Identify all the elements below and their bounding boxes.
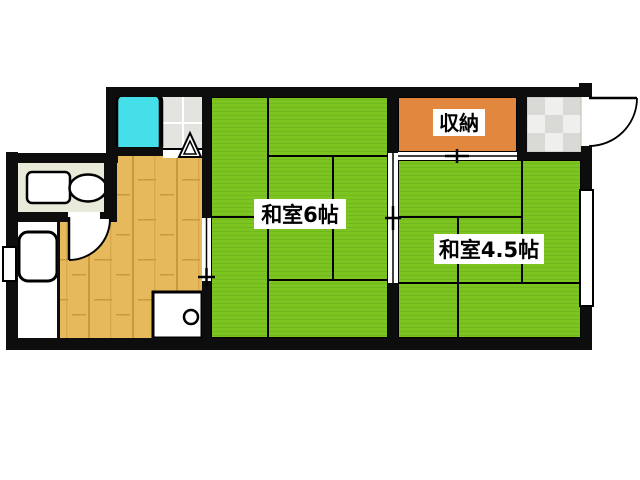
genkan-tile [563,133,581,152]
genkan-tile [563,97,581,115]
bathtub-icon [19,232,57,281]
genkan-tile [527,115,545,133]
window-right-icon [580,190,593,306]
wall-bottom [6,338,592,350]
genkan-tile [545,133,563,152]
genkan-tile [563,115,581,133]
window-left-icon [3,247,16,281]
wall-toilet-bottom-left [6,212,68,222]
wall-washroom-right [57,222,60,338]
tatami6-label: 和室6帖 [261,203,339,227]
wall-hall-tatami6-upper [202,87,211,218]
wall-door-post [579,83,592,97]
toilet-tank-icon [27,172,70,203]
wall-hall-tatami6-lower [202,281,211,338]
genkan-tile [545,97,563,115]
wall-between-rooms-lower [388,283,398,338]
genkan-tile [527,97,545,115]
genkan-entrance [527,97,581,152]
toilet-room [18,163,107,212]
toilet-bowl-icon [70,175,107,202]
floor-plan-page: 収納 和室6帖 和室4.5帖 [0,0,640,480]
floor-plan-drawing: 収納 和室6帖 和室4.5帖 [0,0,640,480]
wall-kitchen-left [106,87,116,163]
wall-between-rooms-upper [388,87,398,153]
genkan-tile [545,115,563,133]
wall-genkan-bottom [517,152,583,160]
tatami45-label: 和室4.5帖 [439,238,539,262]
drain-icon [184,310,198,324]
wall-closet-genkan [517,97,527,160]
kitchen-unit [106,94,203,158]
closet-label: 収納 [439,111,479,135]
wall-toilet-top [6,153,118,163]
genkan-tile [527,133,545,152]
washroom [18,222,57,338]
washing-machine-space [153,292,202,338]
wall-toilet-right [104,153,117,222]
wall-top [106,87,592,97]
kitchen-sink-icon [116,94,161,153]
